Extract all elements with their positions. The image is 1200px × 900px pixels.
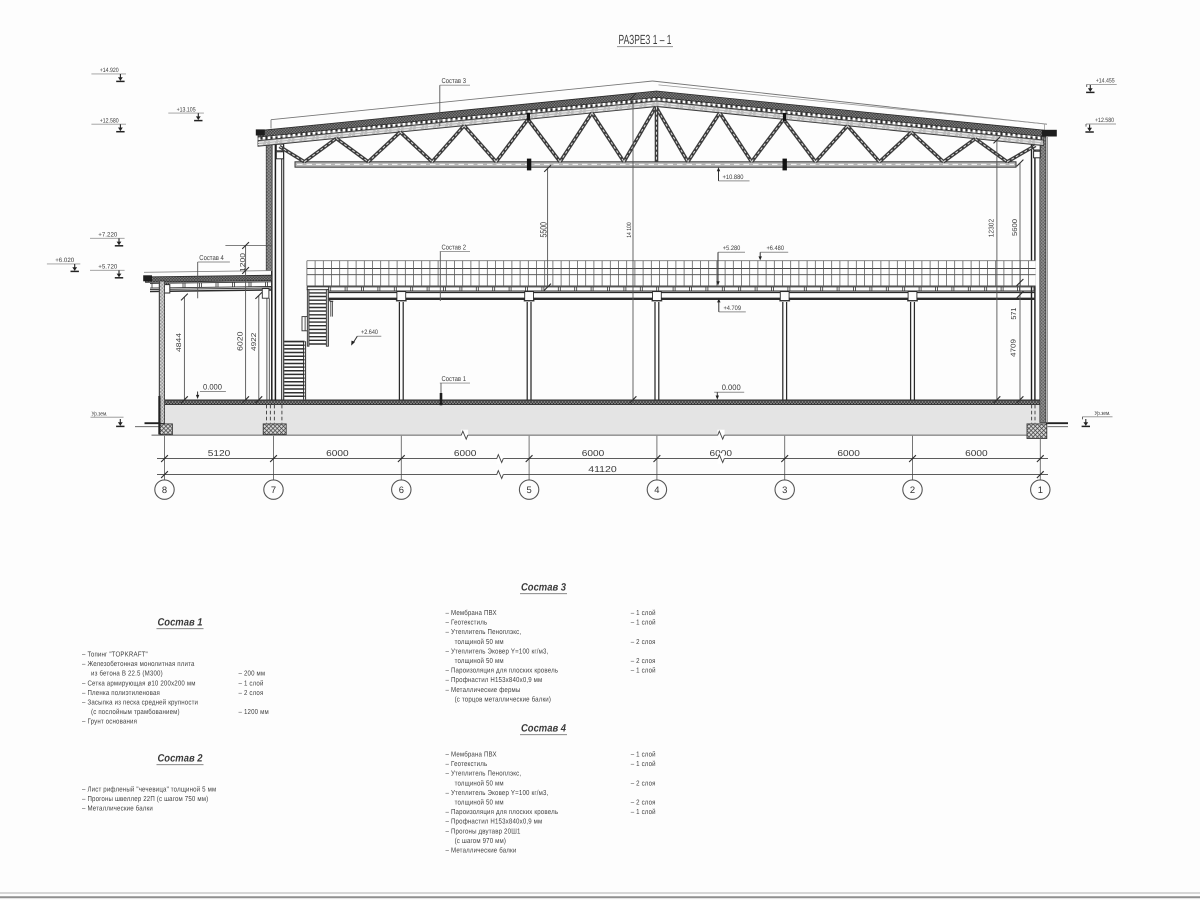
svg-text:Состав 1: Состав 1 (442, 376, 467, 383)
svg-text:4922: 4922 (251, 333, 258, 351)
svg-text:из бетона В 22.5 (М300): из бетона В 22.5 (М300) (91, 669, 163, 678)
svg-text:– Профнастил Н153х840х0,9 мм: – Профнастил Н153х840х0,9 мм (446, 675, 543, 684)
svg-text:– Утеплитель Пеноплэкс,: – Утеплитель Пеноплэкс, (446, 769, 522, 778)
svg-text:4: 4 (654, 484, 659, 495)
svg-text:– Геотекстиль: – Геотекстиль (446, 618, 488, 627)
svg-text:+13.105: +13.105 (177, 106, 196, 113)
svg-text:– Прогоны швеллер 22П (с шагом: – Прогоны швеллер 22П (с шагом 750 мм) (82, 794, 208, 803)
svg-text:– Топинг "TOPKRAFT": – Топинг "TOPKRAFT" (82, 650, 148, 659)
svg-text:– Прогоны двутавр 20Ш1: – Прогоны двутавр 20Ш1 (446, 826, 521, 835)
svg-text:8: 8 (162, 484, 167, 495)
svg-text:0.000: 0.000 (203, 382, 223, 391)
svg-text:6020: 6020 (235, 332, 244, 352)
svg-text:– 2 слоя: – 2 слоя (631, 778, 656, 787)
svg-text:– Мембрана ПВХ: – Мембрана ПВХ (446, 608, 497, 617)
svg-text:+5.280: +5.280 (723, 245, 741, 252)
svg-text:– Металлические балки: – Металлические балки (446, 846, 517, 855)
svg-text:+5.720: +5.720 (98, 264, 118, 271)
svg-text:6: 6 (399, 484, 404, 495)
svg-text:– 1 слой: – 1 слой (239, 678, 264, 687)
svg-text:Состав 2: Состав 2 (158, 753, 203, 765)
svg-text:+10.880: +10.880 (723, 174, 744, 181)
svg-text:1: 1 (1038, 484, 1043, 495)
svg-text:4844: 4844 (176, 333, 183, 352)
svg-text:толщиной 50 мм: толщиной 50 мм (455, 778, 504, 787)
svg-text:– 1 слой: – 1 слой (631, 608, 656, 617)
svg-text:– 2 слоя: – 2 слоя (631, 637, 656, 646)
svg-text:– Профнастил Н153х840х0,9 мм: – Профнастил Н153х840х0,9 мм (446, 817, 543, 826)
svg-text:+4.709: +4.709 (724, 305, 742, 312)
svg-text:(с торцов металлические балки): (с торцов металлические балки) (455, 694, 552, 703)
svg-text:– 2 слоя: – 2 слоя (239, 688, 264, 697)
svg-text:3: 3 (782, 484, 787, 495)
svg-text:– Утеплитель Эковер Y=100 кг/м: – Утеплитель Эковер Y=100 кг/м3, (446, 646, 549, 655)
svg-text:Состав 3: Состав 3 (521, 582, 566, 594)
svg-text:– Металлические фермы: – Металлические фермы (446, 685, 521, 694)
svg-text:+14.455: +14.455 (1096, 78, 1115, 85)
svg-text:– Грунт основания: – Грунт основания (82, 717, 137, 726)
svg-text:– Мембрана ПВХ: – Мембрана ПВХ (446, 750, 497, 759)
svg-text:1200: 1200 (238, 253, 247, 272)
svg-text:41120: 41120 (588, 464, 617, 474)
svg-text:Состав 1: Состав 1 (158, 617, 203, 629)
svg-text:– Утеплитель Эковер Y=100 кг/м: – Утеплитель Эковер Y=100 кг/м3, (446, 788, 549, 797)
svg-text:6000: 6000 (454, 448, 477, 458)
svg-text:– Лист рифленый "чечевица" тол: – Лист рифленый "чечевица" толщиной 5 мм (82, 785, 216, 794)
svg-text:Состав 3: Состав 3 (442, 78, 467, 85)
svg-text:+14.920: +14.920 (100, 67, 119, 74)
svg-text:– Пароизоляция для плоских кро: – Пароизоляция для плоских кровель (446, 666, 559, 675)
svg-text:– Пароизоляция для плоских кро: – Пароизоляция для плоских кровель (446, 807, 559, 816)
svg-text:– 1200 мм: – 1200 мм (239, 707, 269, 716)
svg-text:571: 571 (1009, 308, 1018, 320)
svg-text:– Пленка полиэтиленовая: – Пленка полиэтиленовая (82, 688, 160, 697)
svg-text:5120: 5120 (208, 448, 231, 458)
svg-text:толщиной 50 мм: толщиной 50 мм (455, 637, 504, 646)
svg-text:+2.640: +2.640 (361, 329, 378, 336)
svg-text:5: 5 (526, 484, 531, 495)
svg-text:Состав 4: Состав 4 (199, 255, 224, 262)
svg-text:+12.580: +12.580 (1095, 117, 1114, 124)
svg-text:Состав 4: Состав 4 (521, 723, 566, 735)
svg-text:0.000: 0.000 (722, 383, 742, 392)
svg-text:5500: 5500 (538, 222, 548, 238)
svg-text:– Утеплитель Пеноплэкс,: – Утеплитель Пеноплэкс, (446, 627, 522, 636)
svg-text:(с шагом 970 мм): (с шагом 970 мм) (455, 836, 507, 845)
svg-text:+6.480: +6.480 (767, 245, 785, 252)
svg-text:– 200 мм: – 200 мм (239, 669, 266, 678)
svg-text:(с послойным трамбованием): (с послойным трамбованием) (91, 707, 180, 716)
svg-text:Состав 2: Состав 2 (442, 245, 467, 252)
svg-text:толщиной 50 мм: толщиной 50 мм (455, 656, 504, 665)
svg-text:– 1 слой: – 1 слой (631, 618, 656, 627)
svg-text:– 2 слоя: – 2 слоя (631, 656, 656, 665)
svg-text:6000: 6000 (837, 448, 860, 458)
svg-text:+6.020: +6.020 (55, 257, 75, 264)
svg-text:– Сетка армирующая ø10 200х200: – Сетка армирующая ø10 200х200 мм (82, 678, 196, 687)
svg-text:14 100: 14 100 (626, 222, 633, 238)
svg-text:– Засыпка из песка средней кру: – Засыпка из песка средней крупности (82, 698, 198, 707)
svg-text:– Железобетонная монолитная п: – Железобетонная монолитная плита (82, 659, 195, 668)
svg-text:Ур.зем.: Ур.зем. (92, 410, 108, 417)
svg-text:толщиной 50 мм: толщиной 50 мм (455, 798, 504, 807)
svg-text:– 1 слой: – 1 слой (631, 666, 656, 675)
svg-text:– 1 слой: – 1 слой (631, 759, 656, 768)
svg-text:12302: 12302 (988, 219, 995, 238)
svg-text:7: 7 (271, 484, 276, 495)
svg-text:6000: 6000 (582, 448, 605, 458)
svg-text:+12.580: +12.580 (100, 117, 119, 124)
svg-text:Ур.зем.: Ур.зем. (1095, 410, 1111, 417)
svg-text:– Металлические балки: – Металлические балки (82, 804, 153, 813)
svg-text:6000: 6000 (326, 448, 349, 458)
svg-text:2: 2 (910, 484, 915, 495)
svg-text:– 1 слой: – 1 слой (631, 807, 656, 816)
svg-text:– 1 слой: – 1 слой (631, 750, 656, 759)
svg-text:6000: 6000 (965, 448, 988, 458)
svg-text:РАЗРЕЗ 1 – 1: РАЗРЕЗ 1 – 1 (619, 32, 672, 47)
svg-text:4709: 4709 (1010, 339, 1017, 357)
svg-text:– Геотекстиль: – Геотекстиль (446, 759, 488, 768)
svg-text:5600: 5600 (1012, 219, 1019, 236)
svg-text:– 2 слоя: – 2 слоя (631, 798, 656, 807)
svg-text:+7.220: +7.220 (98, 232, 118, 239)
